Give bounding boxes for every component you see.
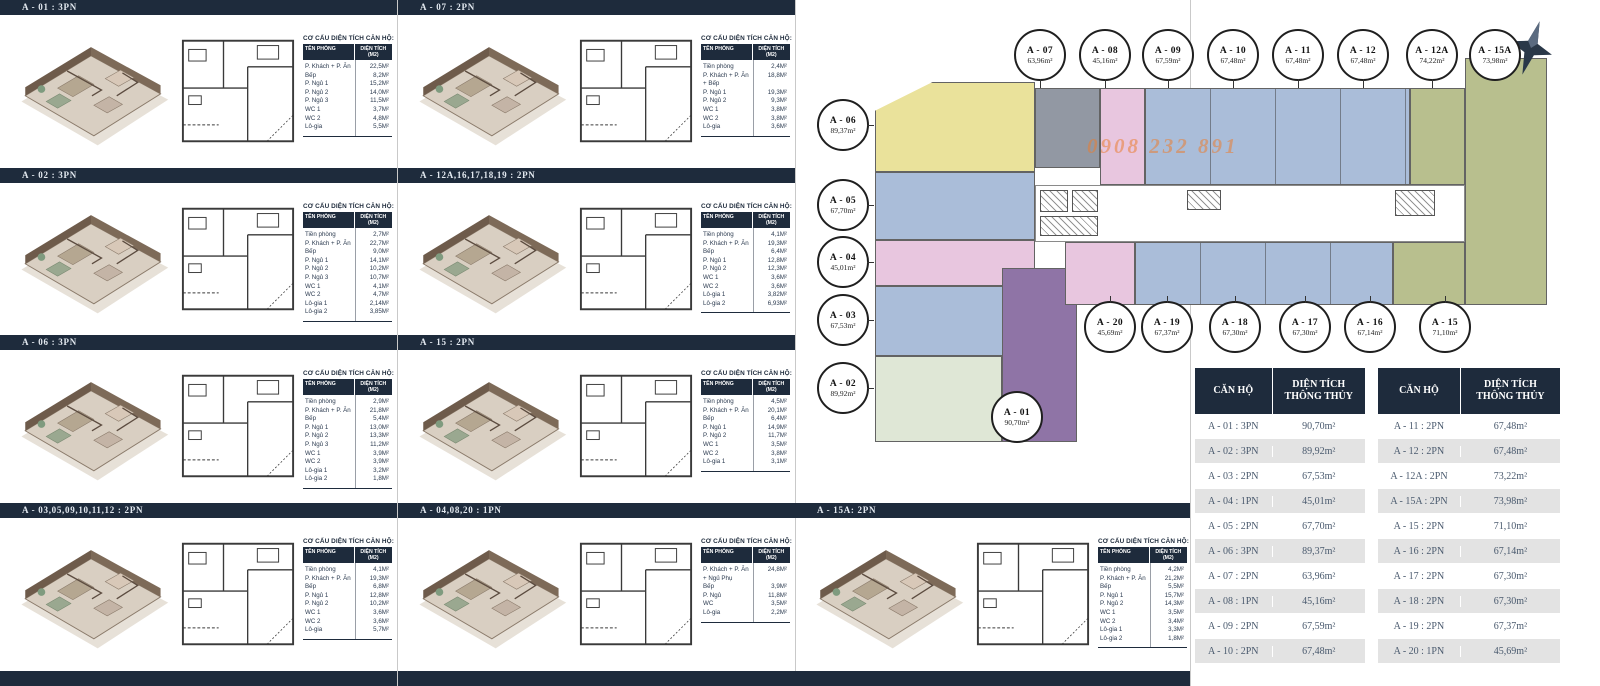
unit-code: A - 08 : 1PN (1195, 596, 1272, 607)
unit-code: A - 15A : 2PN (1378, 496, 1460, 507)
room-name: P. Ngủ 2 (303, 265, 355, 274)
area-row: Bếp5,4M² (303, 415, 392, 424)
unit-block-a20 (1065, 242, 1135, 305)
unit-area: 73,98m² (1460, 496, 1560, 507)
unit-code: A - 18 : 2PN (1378, 596, 1460, 607)
unit-area: 63,96m² (1028, 56, 1053, 65)
3d-floorplan-render (408, 362, 570, 490)
room-name: WC 2 (303, 458, 355, 467)
room-area: 15,2M² (355, 80, 392, 89)
room-area: 3,8M² (753, 115, 790, 124)
area-row: P. Ngủ 114,1M² (303, 257, 392, 266)
area-row: Lô-gia 26,93M² (701, 300, 790, 309)
area-row: P. Khách + P. Ăn + Ngủ Phụ24,8M² (701, 566, 790, 583)
section-header-label: A - 02 : 3PN (22, 170, 77, 180)
room-area: 2,9M² (355, 398, 392, 407)
area-row: Lô-gia5,5M² (303, 123, 392, 132)
section-a01: A - 01 : 3PN CƠ CẤU DIỆN TÍCH CĂN HỘ: TÊ… (0, 0, 397, 168)
stair-core (1040, 216, 1098, 236)
unit-circle-a01: A - 0190,70m² (991, 391, 1043, 443)
section-body: CƠ CẤU DIỆN TÍCH CĂN HỘ: TÊN PHÒNG DIỆN … (0, 350, 397, 503)
unit-block-a15 (1393, 242, 1465, 305)
summary-row: A - 16 : 2PN67,14m² (1378, 539, 1560, 564)
footer-bar (398, 671, 795, 686)
room-area: 14,0M² (355, 89, 392, 98)
area-row: WC 24,8M² (303, 115, 392, 124)
unit-area: 73,98m² (1483, 56, 1508, 65)
room-area: 10,2M² (355, 600, 392, 609)
section-header: A - 15 : 2PN (398, 335, 795, 350)
unit-area: 45,01m² (831, 263, 856, 272)
unit-block-a06 (875, 82, 1035, 172)
area-row: P. Ngủ 119,3M² (701, 89, 790, 98)
unit-code: A - 04 : 1PN (1195, 496, 1272, 507)
area-row: WC 23,8M² (701, 115, 790, 124)
area-row: WC 13,8M² (701, 106, 790, 115)
area-row: Tiền phòng2,7M² (303, 231, 392, 240)
stair-core (1187, 190, 1221, 210)
unit-code: A - 12 : 2PN (1378, 446, 1460, 457)
unit-code: A - 15 : 2PN (1378, 521, 1460, 532)
summary-row: A - 02 : 3PN89,92m² (1195, 439, 1365, 464)
unit-code: A - 20 : 1PN (1378, 646, 1460, 657)
room-name: WC 1 (701, 274, 753, 283)
area-table-header: TÊN PHÒNG DIỆN TÍCH (M2) (303, 212, 392, 228)
room-name: WC 1 (303, 283, 355, 292)
unit-area: 89,37m² (831, 126, 856, 135)
brochure-page: A - 01 : 3PN CƠ CẤU DIỆN TÍCH CĂN HỘ: TÊ… (0, 0, 1600, 686)
room-name: Lô-gia 2 (303, 475, 355, 484)
room-name: P. Khách + P. Ăn + Ngủ Phụ (701, 566, 753, 583)
2d-floorplan (578, 199, 694, 319)
unit-area: 67,30m² (1460, 596, 1560, 607)
unit-code: A - 08 (1092, 46, 1118, 56)
room-name: Tiền phòng (303, 231, 355, 240)
summary-table-header: CĂN HỘ DIỆN TÍCH THÔNG THỦY (1195, 368, 1365, 414)
area-row: Bếp6,4M² (701, 248, 790, 257)
col-dien-tich: DIỆN TÍCH (M2) (753, 379, 790, 395)
unit-circle-a09: A - 0967,59m² (1142, 29, 1194, 81)
room-name: P. Ngủ 3 (303, 441, 355, 450)
room-name: Tiền phòng (701, 398, 753, 407)
room-name: P. Ngủ (701, 592, 753, 601)
area-row: Lô-gia 12,14M² (303, 300, 392, 309)
room-name: WC 2 (701, 115, 753, 124)
section-a04-08-20: A - 04,08,20 : 1PN CƠ CẤU DIỆN TÍCH CĂN … (398, 503, 795, 671)
room-area: 6,4M² (753, 248, 790, 257)
footer-bar (0, 671, 397, 686)
room-name: WC 2 (303, 291, 355, 300)
area-row: P. Khách + P. Ăn + Bếp18,8M² (701, 72, 790, 89)
summary-row: A - 07 : 2PN63,96m² (1195, 564, 1365, 589)
room-area: 3,8M² (753, 106, 790, 115)
room-area: 2,4M² (753, 63, 790, 72)
area-table: CƠ CẤU DIỆN TÍCH CĂN HỘ: TÊN PHÒNG DIỆN … (701, 370, 790, 472)
room-name: Lô-gia (701, 609, 753, 618)
unit-area: 67,14m² (1460, 546, 1560, 557)
unit-circle-a20: A - 2045,69m² (1084, 301, 1136, 353)
room-name: P. Khách + P. Ăn (303, 575, 355, 584)
unit-code: A - 05 : 2PN (1195, 521, 1272, 532)
area-row: Tiền phòng2,4M² (701, 63, 790, 72)
3d-floorplan-render (10, 362, 172, 490)
room-name: WC 1 (303, 609, 355, 618)
area-row: Lô-gia5,7M² (303, 626, 392, 635)
2d-floorplan (180, 366, 296, 486)
room-name: Lô-gia (303, 123, 355, 132)
room-area: 4,1M² (355, 283, 392, 292)
room-name: Lô-gia 2 (303, 308, 355, 317)
room-name: P. Ngủ 2 (303, 600, 355, 609)
unit-area: 90,70m² (1272, 421, 1366, 432)
unit-area: 89,92m² (1272, 446, 1366, 457)
room-name: WC 1 (303, 450, 355, 459)
unit-code: A - 17 : 2PN (1378, 571, 1460, 582)
room-name: P. Ngủ 1 (701, 424, 753, 433)
area-table-title: CƠ CẤU DIỆN TÍCH CĂN HỘ: (303, 203, 392, 210)
room-name: Tiền phòng (701, 63, 753, 72)
col-ten-phong: TÊN PHÒNG (701, 547, 753, 563)
room-name: Tiền phòng (701, 231, 753, 240)
2d-floorplan (180, 534, 296, 654)
area-table: CƠ CẤU DIỆN TÍCH CĂN HỘ: TÊN PHÒNG DIỆN … (701, 203, 790, 313)
area-table: CƠ CẤU DIỆN TÍCH CĂN HỘ: TÊN PHÒNG DIỆN … (701, 538, 790, 623)
elevator-core (1040, 190, 1068, 212)
room-area: 13,0M² (355, 424, 392, 433)
room-area: 4,1M² (753, 231, 790, 240)
section-header-label: A - 12A,16,17,18,19 : 2PN (420, 170, 536, 180)
unit-code: A - 05 (830, 196, 856, 206)
room-name: P. Ngủ 2 (701, 265, 753, 274)
room-name: P. Ngủ 1 (303, 592, 355, 601)
area-row: Lô-gia 13,2M² (303, 467, 392, 476)
room-area: 4,1M² (355, 566, 392, 575)
unit-area: 45,16m² (1093, 56, 1118, 65)
area-row: Tiền phòng4,1M² (701, 231, 790, 240)
room-name: P. Ngủ 1 (303, 424, 355, 433)
room-area: 3,5M² (753, 441, 790, 450)
room-name: P. Khách + P. Ăn (701, 407, 753, 416)
unit-code: A - 02 : 3PN (1195, 446, 1272, 457)
col-ten-phong: TÊN PHÒNG (303, 212, 355, 228)
room-area: 14,9M² (753, 424, 790, 433)
unit-circle-a02: A - 0289,92m² (817, 362, 869, 414)
unit-circle-a15: A - 1571,10m² (1419, 301, 1471, 353)
section-header: A - 07 : 2PN (398, 0, 795, 15)
unit-area: 67,48m² (1221, 56, 1246, 65)
room-name: WC 2 (701, 283, 753, 292)
col-dien-tich: DIỆN TÍCH (M2) (355, 212, 392, 228)
3d-floorplan-render (10, 195, 172, 323)
unit-area: 67,48m² (1272, 646, 1366, 657)
unit-area: 89,37m² (1272, 546, 1366, 557)
area-row: P. Khách + P. Ăn22,7M² (303, 240, 392, 249)
unit-code: A - 01 : 3PN (1195, 421, 1272, 432)
unit-circle-a08: A - 0845,16m² (1079, 29, 1131, 81)
area-row: Bếp6,8M² (303, 583, 392, 592)
area-row: P. Ngủ 114,9M² (701, 424, 790, 433)
unit-code: A - 06 : 3PN (1195, 546, 1272, 557)
room-name: P. Ngủ 1 (701, 257, 753, 266)
area-table: CƠ CẤU DIỆN TÍCH CĂN HỘ: TÊN PHÒNG DIỆN … (303, 370, 392, 489)
room-area: 4,8M² (355, 115, 392, 124)
area-row: Bếp3,9M² (701, 583, 790, 592)
unit-area: 71,10m² (1433, 328, 1458, 337)
area-row: P. Ngủ11,8M² (701, 592, 790, 601)
col-ten-phong: TÊN PHÒNG (303, 547, 355, 563)
summary-row: A - 15A : 2PN73,98m² (1378, 489, 1560, 514)
room-area: 3,82M² (753, 291, 790, 300)
unit-area: 67,30m² (1460, 571, 1560, 582)
unit-code: A - 20 (1097, 318, 1123, 328)
3d-floorplan-render (408, 195, 570, 323)
section-header: A - 03,05,09,10,11,12 : 2PN (0, 503, 397, 518)
summary-table-2: CĂN HỘ DIỆN TÍCH THÔNG THỦY A - 11 : 2PN… (1378, 368, 1560, 664)
unit-area: 45,69m² (1098, 328, 1123, 337)
col-dien-tich: DIỆN TÍCH (M2) (355, 379, 392, 395)
unit-code: A - 10 (1220, 46, 1246, 56)
room-name: P. Khách + P. Ăn + Bếp (701, 72, 753, 89)
3d-floorplan-render (408, 530, 570, 658)
area-row: P. Khách + P. Ăn19,3M² (701, 240, 790, 249)
room-area: 6,8M² (355, 583, 392, 592)
unit-area: 73,22m² (1460, 471, 1560, 482)
phone-watermark: 0908 232 891 (1087, 134, 1239, 159)
section-body: CƠ CẤU DIỆN TÍCH CĂN HỘ: TÊN PHÒNG DIỆN … (0, 518, 397, 671)
unit-code: A - 07 (1027, 46, 1053, 56)
unit-circle-a07: A - 0763,96m² (1014, 29, 1066, 81)
2d-floorplan (578, 366, 694, 486)
area-row: P. Ngủ 311,5M² (303, 97, 392, 106)
area-row: Lô-gia 13,1M² (701, 458, 790, 467)
unit-code: A - 16 (1357, 318, 1383, 328)
room-area: 5,5M² (355, 123, 392, 132)
area-row: WC 14,1M² (303, 283, 392, 292)
unit-code: A - 09 (1155, 46, 1181, 56)
2d-floorplan (578, 534, 694, 654)
area-table: CƠ CẤU DIỆN TÍCH CĂN HỘ: TÊN PHÒNG DIỆN … (303, 538, 392, 640)
room-name: P. Ngủ 2 (303, 432, 355, 441)
section-header-label: A - 15 : 2PN (420, 337, 475, 347)
area-row: WC 24,7M² (303, 291, 392, 300)
room-area: 3,6M² (753, 274, 790, 283)
area-row: WC 23,6M² (303, 618, 392, 627)
area-row: WC 13,7M² (303, 106, 392, 115)
unit-circle-a03: A - 0367,53m² (817, 294, 869, 346)
area-row: Lô-gia 13,82M² (701, 291, 790, 300)
area-table-header: TÊN PHÒNG DIỆN TÍCH (M2) (701, 379, 790, 395)
room-name: WC 1 (303, 106, 355, 115)
unit-area: 67,30m² (1293, 328, 1318, 337)
room-area: 3,6M² (753, 283, 790, 292)
room-name: P. Ngủ 1 (701, 89, 753, 98)
room-name: P. Khách + P. Ăn (701, 240, 753, 249)
elevator-core (1072, 190, 1098, 212)
room-name: Bếp (303, 583, 355, 592)
section-header-label: A - 01 : 3PN (22, 2, 77, 12)
room-name: Bếp (701, 248, 753, 257)
unit-area: 67,59m² (1156, 56, 1181, 65)
area-row: WC 23,9M² (303, 458, 392, 467)
area-table-title: CƠ CẤU DIỆN TÍCH CĂN HỘ: (701, 538, 790, 545)
unit-area: 67,70m² (1272, 521, 1366, 532)
section-body: CƠ CẤU DIỆN TÍCH CĂN HỘ: TÊN PHÒNG DIỆN … (398, 15, 795, 168)
room-name: P. Khách + P. Ăn (303, 63, 355, 72)
room-name: P. Khách + P. Ăn (303, 240, 355, 249)
col-ten-phong: TÊN PHÒNG (701, 44, 753, 60)
room-area: 2,2M² (753, 609, 790, 618)
section-a15: A - 15 : 2PN CƠ CẤU DIỆN TÍCH CĂN HỘ: TÊ… (398, 335, 795, 503)
room-name: WC 2 (303, 618, 355, 627)
room-area: 3,85M² (355, 308, 392, 317)
unit-area: 67,14m² (1358, 328, 1383, 337)
col-ten-phong: TÊN PHÒNG (701, 212, 753, 228)
unit-circle-a18: A - 1867,30m² (1209, 301, 1261, 353)
summary-row: A - 15 : 2PN71,10m² (1378, 514, 1560, 539)
room-area: 11,8M² (753, 592, 790, 601)
summary-row: A - 17 : 2PN67,30m² (1378, 564, 1560, 589)
area-row: Bếp9,0M² (303, 248, 392, 257)
section-header-label: A - 07 : 2PN (420, 2, 475, 12)
room-name: P. Ngủ 1 (303, 257, 355, 266)
unit-area: 45,16m² (1272, 596, 1366, 607)
summary-row: A - 01 : 3PN90,70m² (1195, 414, 1365, 439)
summary-row: A - 09 : 2PN67,59m² (1195, 614, 1365, 639)
unit-code: A - 15 (1432, 318, 1458, 328)
section-header-label: A - 03,05,09,10,11,12 : 2PN (22, 505, 143, 515)
2d-floorplan (180, 31, 296, 151)
summary-row: A - 08 : 1PN45,16m² (1195, 589, 1365, 614)
area-row: P. Ngủ 210,2M² (303, 600, 392, 609)
unit-area: 45,69m² (1460, 646, 1560, 657)
unit-area: 67,53m² (831, 321, 856, 330)
unit-area: 67,53m² (1272, 471, 1366, 482)
room-area: 14,1M² (355, 257, 392, 266)
room-name: Lô-gia 1 (701, 458, 753, 467)
summary-row: A - 04 : 1PN45,01m² (1195, 489, 1365, 514)
area-row: P. Ngủ 213,3M² (303, 432, 392, 441)
unit-area: 67,48m² (1460, 446, 1560, 457)
room-area: 24,8M² (753, 566, 790, 583)
room-name: WC 2 (701, 450, 753, 459)
unit-area: 63,96m² (1272, 571, 1366, 582)
section-a03-05-09-10-11-12: A - 03,05,09,10,11,12 : 2PN CƠ CẤU DIỆN … (0, 503, 397, 671)
room-area: 3,1M² (753, 458, 790, 467)
col-dien-tich-thong-thuy: DIỆN TÍCH THÔNG THỦY (1460, 368, 1560, 414)
unit-area: 89,92m² (831, 389, 856, 398)
unit-block-a15a (1465, 58, 1547, 305)
room-area: 5,4M² (355, 415, 392, 424)
room-name: WC 2 (303, 115, 355, 124)
col-dien-tich: DIỆN TÍCH (M2) (753, 44, 790, 60)
col-dien-tich: DIỆN TÍCH (M2) (753, 547, 790, 563)
area-row: Bếp8,2M² (303, 72, 392, 81)
room-area: 4,5M² (753, 398, 790, 407)
summary-row: A - 05 : 2PN67,70m² (1195, 514, 1365, 539)
area-row: P. Ngủ 210,2M² (303, 265, 392, 274)
area-table-title: CƠ CẤU DIỆN TÍCH CĂN HỘ: (701, 35, 790, 42)
unit-circle-a05: A - 0567,70m² (817, 179, 869, 231)
room-area: 19,3M² (753, 240, 790, 249)
area-table: CƠ CẤU DIỆN TÍCH CĂN HỘ: TÊN PHÒNG DIỆN … (303, 203, 392, 322)
3d-floorplan-render (408, 27, 570, 155)
unit-block-a05 (875, 172, 1035, 240)
unit-area: 67,59m² (1272, 621, 1366, 632)
section-body: CƠ CẤU DIỆN TÍCH CĂN HỘ: TÊN PHÒNG DIỆN … (398, 183, 795, 336)
area-table-title: CƠ CẤU DIỆN TÍCH CĂN HỘ: (303, 35, 392, 42)
unit-area: 67,37m² (1460, 621, 1560, 632)
room-name: Lô-gia (701, 123, 753, 132)
room-area: 2,7M² (355, 231, 392, 240)
room-name: Tiền phòng (303, 566, 355, 575)
room-area: 4,7M² (355, 291, 392, 300)
room-area: 9,3M² (753, 97, 790, 106)
col-dien-tich: DIỆN TÍCH (M2) (355, 547, 392, 563)
area-row: P. Ngủ 29,3M² (701, 97, 790, 106)
room-name: Bếp (303, 72, 355, 81)
col-dien-tich: DIỆN TÍCH (M2) (753, 212, 790, 228)
unit-code: A - 06 (830, 116, 856, 126)
unit-block-a12a (1410, 88, 1465, 185)
footer-bar (795, 671, 1190, 686)
room-area: 1,8M² (355, 475, 392, 484)
room-area: 21,8M² (355, 407, 392, 416)
room-area: 6,93M² (753, 300, 790, 309)
unit-area: 45,01m² (1272, 496, 1366, 507)
unit-code: A - 16 : 2PN (1378, 546, 1460, 557)
unit-circle-a06: A - 0689,37m² (817, 99, 869, 151)
unit-code: A - 19 (1154, 318, 1180, 328)
section-header: A - 04,08,20 : 1PN (398, 503, 795, 518)
room-area: 12,8M² (753, 257, 790, 266)
area-table-title: CƠ CẤU DIỆN TÍCH CĂN HỘ: (701, 203, 790, 210)
unit-area: 71,10m² (1460, 521, 1560, 532)
summary-row: A - 12A : 2PN73,22m² (1378, 464, 1560, 489)
room-area: 20,1M² (753, 407, 790, 416)
room-area: 3,6M² (753, 123, 790, 132)
summary-table-header: CĂN HỘ DIỆN TÍCH THÔNG THỦY (1378, 368, 1560, 414)
room-name: Bếp (303, 415, 355, 424)
area-row: P. Ngủ 212,3M² (701, 265, 790, 274)
area-table-header: TÊN PHÒNG DIỆN TÍCH (M2) (303, 379, 392, 395)
unit-code: A - 07 : 2PN (1195, 571, 1272, 582)
area-row: P. Ngủ 112,8M² (701, 257, 790, 266)
3d-floorplan-render (10, 530, 172, 658)
room-area: 3,7M² (355, 106, 392, 115)
area-table-header: TÊN PHÒNG DIỆN TÍCH (M2) (701, 547, 790, 563)
room-area: 18,8M² (753, 72, 790, 89)
unit-code: A - 19 : 2PN (1378, 621, 1460, 632)
col-dien-tich-thong-thuy: DIỆN TÍCH THÔNG THỦY (1272, 368, 1366, 414)
area-row: Tiền phòng4,1M² (303, 566, 392, 575)
area-row: Bếp6,4M² (701, 415, 790, 424)
unit-area: 67,37m² (1155, 328, 1180, 337)
section-body: CƠ CẤU DIỆN TÍCH CĂN HỘ: TÊN PHÒNG DIỆN … (398, 350, 795, 503)
area-row: Lô-gia2,2M² (701, 609, 790, 618)
room-area: 19,3M² (355, 575, 392, 584)
room-name: Lô-gia 2 (701, 300, 753, 309)
unit-circle-a04: A - 0445,01m² (817, 236, 869, 288)
summary-row: A - 11 : 2PN67,48m² (1378, 414, 1560, 439)
area-table-header: TÊN PHÒNG DIỆN TÍCH (M2) (701, 212, 790, 228)
area-row: P. Ngủ 214,0M² (303, 89, 392, 98)
area-row: P. Ngủ 311,2M² (303, 441, 392, 450)
unit-circle-a12: A - 1267,48m² (1337, 29, 1389, 81)
room-area: 3,5M² (753, 600, 790, 609)
elevator-core (1395, 190, 1435, 216)
section-a06: A - 06 : 3PN CƠ CẤU DIỆN TÍCH CĂN HỘ: TÊ… (0, 335, 397, 503)
unit-code: A - 10 : 2PN (1195, 646, 1272, 657)
